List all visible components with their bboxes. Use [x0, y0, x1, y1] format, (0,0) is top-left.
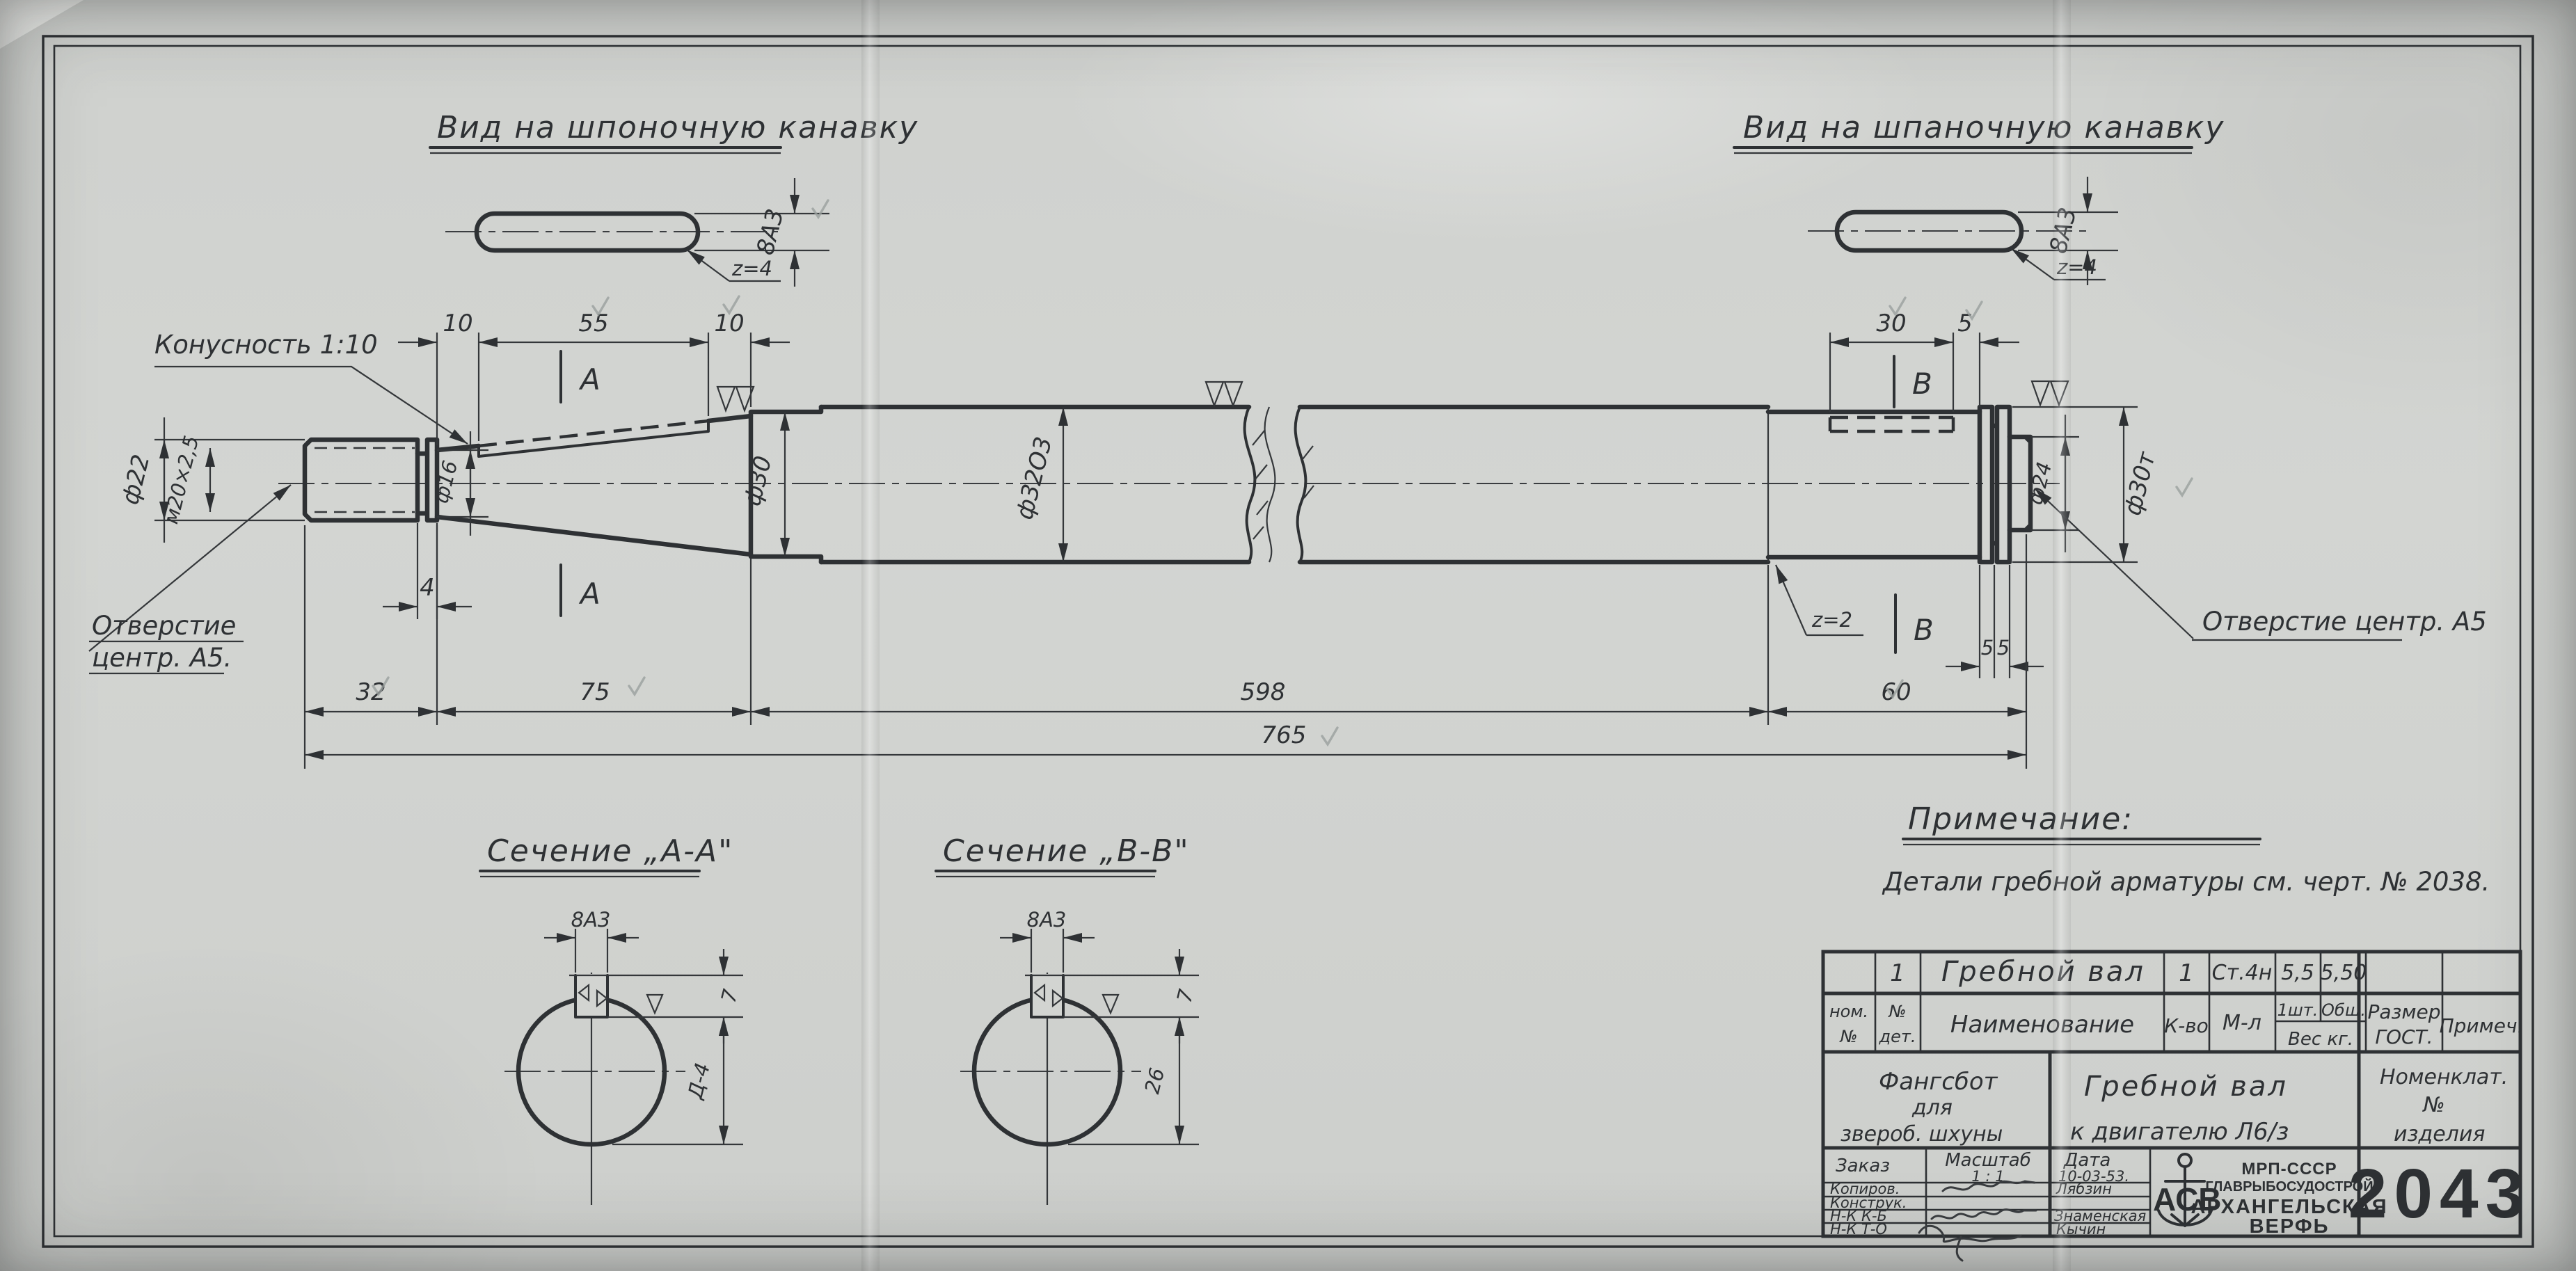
tb-weight-total: 5,50: [2321, 961, 2367, 985]
title-block: 1 Гребной вал 1 Ст.4н 5,5 5,50 ном. № № …: [1823, 952, 2531, 1261]
tb-h-det2: дет.: [1879, 1027, 1916, 1046]
shipyard-stamp: АСВ МРП-СССР ГЛАВРЫБОСУДОСТРОЙ АРХАНГЕЛЬ…: [2153, 1154, 2531, 1238]
shaft-break: [1245, 407, 1314, 562]
left-slot-teeth-label: z=4: [731, 257, 772, 280]
center-hole-left-label-1: Отверстие: [92, 611, 236, 641]
section-aa-height-dim: Д-4: [683, 1060, 715, 1102]
tb-order-label: Заказ: [1836, 1156, 1890, 1176]
section-aa-depth-dim: 7: [717, 986, 743, 1005]
section-a-letter-bottom: А: [578, 577, 601, 611]
section-a-letter-top: А: [578, 362, 601, 397]
signature-nkkb: [1932, 1210, 2036, 1219]
right-keyway-view: Вид на шпаночную канавку 8А3 z=4: [1734, 110, 2225, 285]
section-bb-height-dim: 26: [1140, 1066, 1169, 1096]
tb-material: Ст.4н: [2212, 961, 2273, 985]
tb-h-size1: Размер: [2367, 1000, 2440, 1023]
left-keyway-view: Вид на шпоночную канавку 8А3 z=4: [430, 110, 919, 287]
dim-30: 30: [1876, 310, 1906, 337]
note-block: Примечание: Детали гребной арматуры см. …: [1882, 801, 2490, 897]
section-bb: Сечение „В-В" 8А3 7 26: [936, 833, 1199, 1205]
right-keyway-title: Вид на шпаночную канавку: [1743, 110, 2225, 145]
tb-project-2: для: [1911, 1096, 1953, 1120]
note-body: Детали гребной арматуры см. черт. № 2038…: [1882, 867, 2490, 897]
taper-keyway-hidden-top: [479, 421, 708, 446]
tb-nomen-2: №: [2422, 1093, 2444, 1117]
drawing-canvas: Вид на шпоночную канавку 8А3 z=4 Вид на …: [0, 0, 2576, 1271]
z2-label: z=2: [1811, 608, 1852, 632]
dim-765: 765: [1262, 721, 1307, 749]
tb-h-name: Наименование: [1950, 1011, 2134, 1039]
finish-mark-body: [1206, 382, 1242, 406]
section-aa-width-dim: 8А3: [571, 908, 611, 932]
finish-mark-aa: [647, 995, 662, 1013]
section-bb-width-dim: 8А3: [1027, 908, 1067, 932]
finish-mark-taper: [717, 387, 754, 410]
tb-h-w1: 1шт.: [2277, 1000, 2319, 1020]
blueprint-sheet: Вид на шпоночную канавку 8А3 z=4 Вид на …: [0, 0, 2576, 1271]
tb-part-title: Гребной вал: [2084, 1071, 2288, 1103]
tb-h-mat: М-л: [2223, 1011, 2261, 1035]
tb-h-qty: К-во: [2164, 1014, 2209, 1037]
tb-h-note: Примеч.: [2440, 1014, 2524, 1037]
dim-10a: 10: [443, 310, 472, 337]
stamp-org-4: ВЕРФЬ: [2250, 1215, 2330, 1238]
tb-h-det1: №: [1888, 1002, 1907, 1021]
tb-nomen-1: Номенклат.: [2380, 1065, 2508, 1089]
dim-m20: м20×2,5: [159, 433, 203, 527]
section-bb-depth-dim: 7: [1172, 986, 1199, 1005]
left-keyway-title: Вид на шпоночную канавку: [437, 110, 919, 145]
signature-nkto: [1919, 1226, 2021, 1261]
section-bb-title: Сечение „В-В": [943, 833, 1190, 869]
tb-part-name: Гребной вал: [1941, 956, 2145, 988]
tb-nomen-3: изделия: [2394, 1122, 2485, 1146]
shaft-dimensions: ф22 м20×2,5 ф16 4 10 55 10 ф30 ф32О3 30 …: [116, 310, 2161, 769]
section-aa: Сечение „А-А" 8А3 7 Д-4: [480, 833, 743, 1205]
tb-h-nom1: ном.: [1829, 1002, 1868, 1021]
dim-5b: 5: [1997, 636, 2010, 660]
dim-32: 32: [356, 678, 385, 706]
dim-d22: ф22: [116, 451, 155, 507]
dim-5: 5: [1957, 310, 1973, 337]
tb-project-3: звероб. шхуны: [1840, 1122, 2003, 1146]
tb-h-size2: ГОСТ.: [2375, 1025, 2433, 1048]
tb-h-nom2: №: [1839, 1027, 1858, 1046]
center-hole-left-label-2: центр. А5.: [92, 643, 232, 673]
tb-part-subtitle: к двигателю Л6/з: [2070, 1118, 2289, 1146]
dim-d16: ф16: [429, 458, 462, 506]
tb-row-nkto-role: Н-К Т-О: [1830, 1221, 1887, 1238]
finish-mark-end: [2032, 381, 2068, 405]
drawing-number: 2043: [2348, 1155, 2531, 1233]
tb-project-1: Фангсбот: [1879, 1068, 1998, 1096]
sheet-frame: [43, 36, 2533, 1247]
taper-label: Конусность 1:10: [154, 330, 378, 360]
finish-mark-bb: [1103, 995, 1118, 1013]
note-title: Примечание:: [1908, 801, 2133, 837]
tb-row-copier-name: Лябзин: [2056, 1181, 2112, 1197]
section-b-letter-bottom: В: [1914, 613, 1934, 647]
dim-d32: ф32О3: [1010, 434, 1058, 522]
stamp-org-1: МРП-СССР: [2241, 1160, 2337, 1178]
dim-5a: 5: [1981, 636, 1994, 660]
dim-d30: ф30: [738, 453, 777, 509]
center-hole-right-label: Отверстие центр. А5: [2202, 607, 2487, 637]
tb-det-no: 1: [1890, 959, 1905, 987]
shaft-outline: [278, 407, 2060, 562]
dim-4: 4: [420, 574, 435, 602]
tb-h-w2: Общ.: [2321, 1000, 2366, 1020]
dim-55: 55: [578, 310, 608, 337]
right-slot-teeth-label: z=4: [2056, 255, 2097, 279]
tb-qty: 1: [2179, 959, 2194, 987]
signatures: [1919, 1181, 2036, 1261]
tb-row-nkto-name: Кычин: [2056, 1221, 2106, 1238]
dim-d24: ф24: [2023, 460, 2056, 507]
dim-d30t: ф30т: [2119, 449, 2161, 518]
section-aa-title: Сечение „А-А": [487, 833, 733, 869]
pencil-check-marks: [373, 200, 2192, 744]
dim-75: 75: [580, 678, 610, 706]
section-b-letter-top: В: [1912, 367, 1932, 401]
thread-root-lines: [315, 448, 415, 512]
tb-weight-unit: 5,5: [2281, 961, 2314, 985]
tb-h-w3: Вес кг.: [2288, 1029, 2353, 1050]
right-keyway-hidden: [1830, 417, 1953, 431]
dim-598: 598: [1241, 678, 1286, 706]
